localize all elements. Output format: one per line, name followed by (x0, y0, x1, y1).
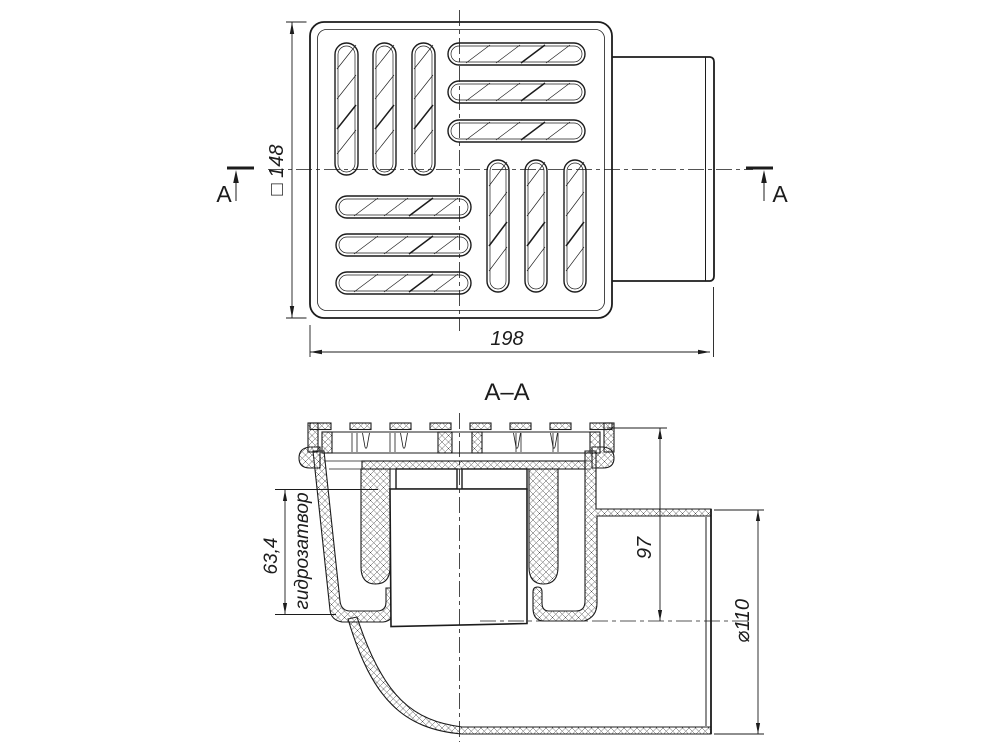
slots-top-right (448, 43, 585, 142)
grate-plan (310, 22, 612, 318)
top-view: A A □ 148 198 (216, 10, 788, 357)
slot-swirl-accent (409, 198, 433, 292)
water-seal-label: гидрозатвор (292, 492, 313, 609)
dim-110-label: ⌀110 (732, 599, 754, 643)
dim-198-label: 198 (490, 328, 523, 350)
dim-110: ⌀110 (714, 510, 764, 734)
slots-top-left (335, 43, 435, 175)
section-arrow-icon (761, 170, 767, 183)
slot-swirl-accent (521, 45, 545, 140)
cup-top-left (396, 469, 457, 489)
frame-teeth (363, 433, 558, 448)
section-marker-right: A (746, 168, 788, 207)
bell-left-wall (361, 469, 390, 584)
frame-rib-lines (352, 433, 558, 452)
grate-frame-band (322, 432, 600, 453)
slot-swirl-lines (354, 198, 458, 292)
dim-63-4-label: 63,4 (261, 538, 282, 575)
slots-bottom-right (487, 160, 586, 292)
section-title: A–A (484, 379, 529, 406)
outlet-pipe-plan (612, 57, 714, 281)
section-letter-left: A (216, 181, 232, 207)
slots-bottom-left (336, 196, 471, 294)
grate-inner-edge (318, 30, 605, 311)
slot-swirl-lines (489, 162, 584, 271)
body-bottom-shell (348, 617, 711, 734)
section-letter-right: A (772, 181, 788, 207)
pipe-outline (612, 57, 714, 281)
cup-top-right (462, 469, 527, 489)
drawing-canvas: A A □ 148 198 A–A (0, 0, 1000, 750)
dim-97-label: 97 (634, 536, 656, 559)
body-right-wall-and-outlet (533, 451, 711, 621)
dim-198: 198 (310, 287, 714, 357)
slot-swirl-accent (337, 105, 433, 129)
section-view: A–A (261, 379, 764, 742)
section-arrow-icon (233, 170, 239, 183)
slot-swirl-lines (337, 45, 433, 154)
bell-right-wall (529, 469, 558, 584)
dim-97: 97 (607, 428, 667, 621)
cup-body (390, 489, 527, 627)
seal-cup (390, 469, 527, 627)
dim-148: □ 148 (266, 22, 307, 318)
dim-148-label: □ 148 (266, 144, 288, 195)
floor-drain-technical-drawing: A A □ 148 198 A–A (0, 0, 1000, 750)
slot-swirl-lines (466, 45, 570, 140)
slot-swirl-accent (489, 222, 584, 246)
grate-section (308, 423, 614, 452)
section-marker-left: A (216, 168, 254, 207)
